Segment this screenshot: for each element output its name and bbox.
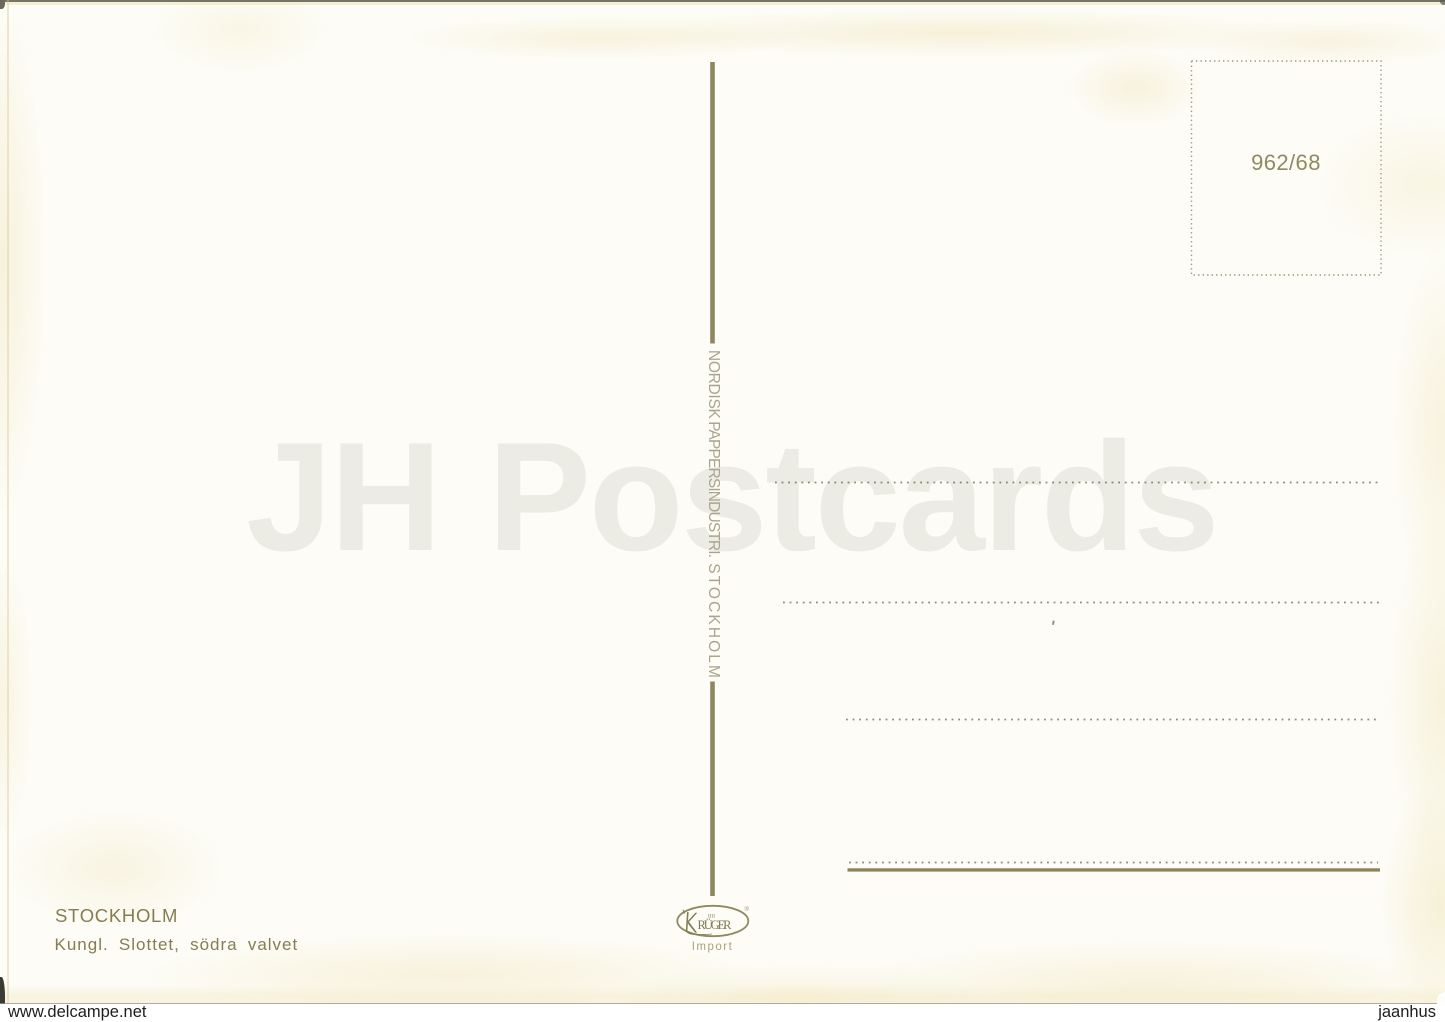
svg-text:®: ®	[745, 906, 750, 913]
svg-text:RÜGER: RÜGER	[698, 918, 733, 932]
